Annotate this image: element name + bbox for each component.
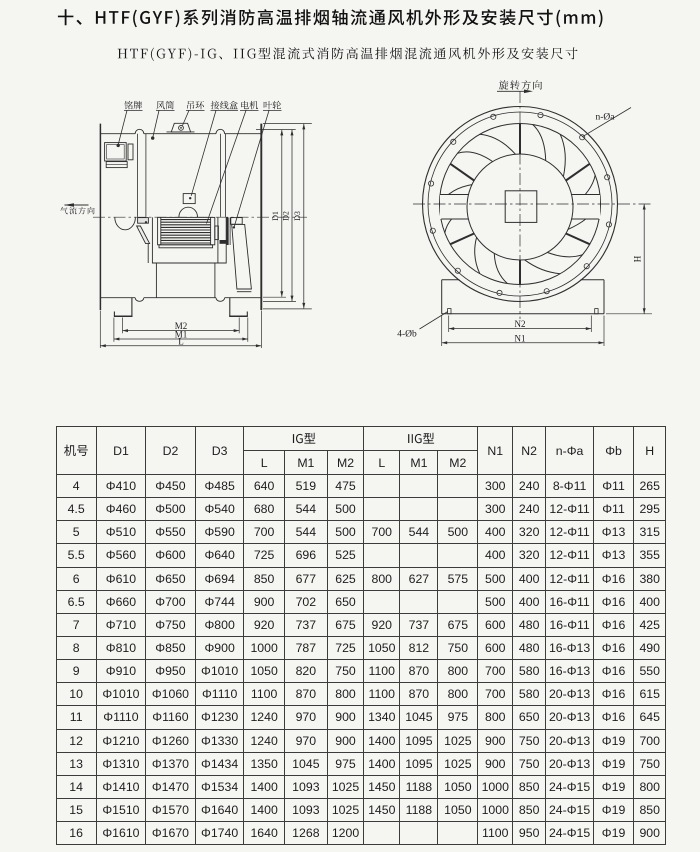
svg-text:M2: M2: [175, 321, 188, 331]
svg-text:H: H: [633, 255, 643, 262]
svg-text:D3: D3: [293, 211, 302, 221]
svg-text:M1: M1: [175, 330, 188, 340]
svg-text:N2: N2: [515, 319, 526, 329]
svg-text:4-Øb: 4-Øb: [397, 330, 417, 340]
svg-text:L: L: [178, 336, 184, 346]
svg-text:n-Øa: n-Øa: [596, 113, 616, 123]
svg-text:D1: D1: [271, 211, 280, 221]
svg-text:D2: D2: [281, 211, 290, 221]
svg-text:N1: N1: [515, 333, 526, 343]
